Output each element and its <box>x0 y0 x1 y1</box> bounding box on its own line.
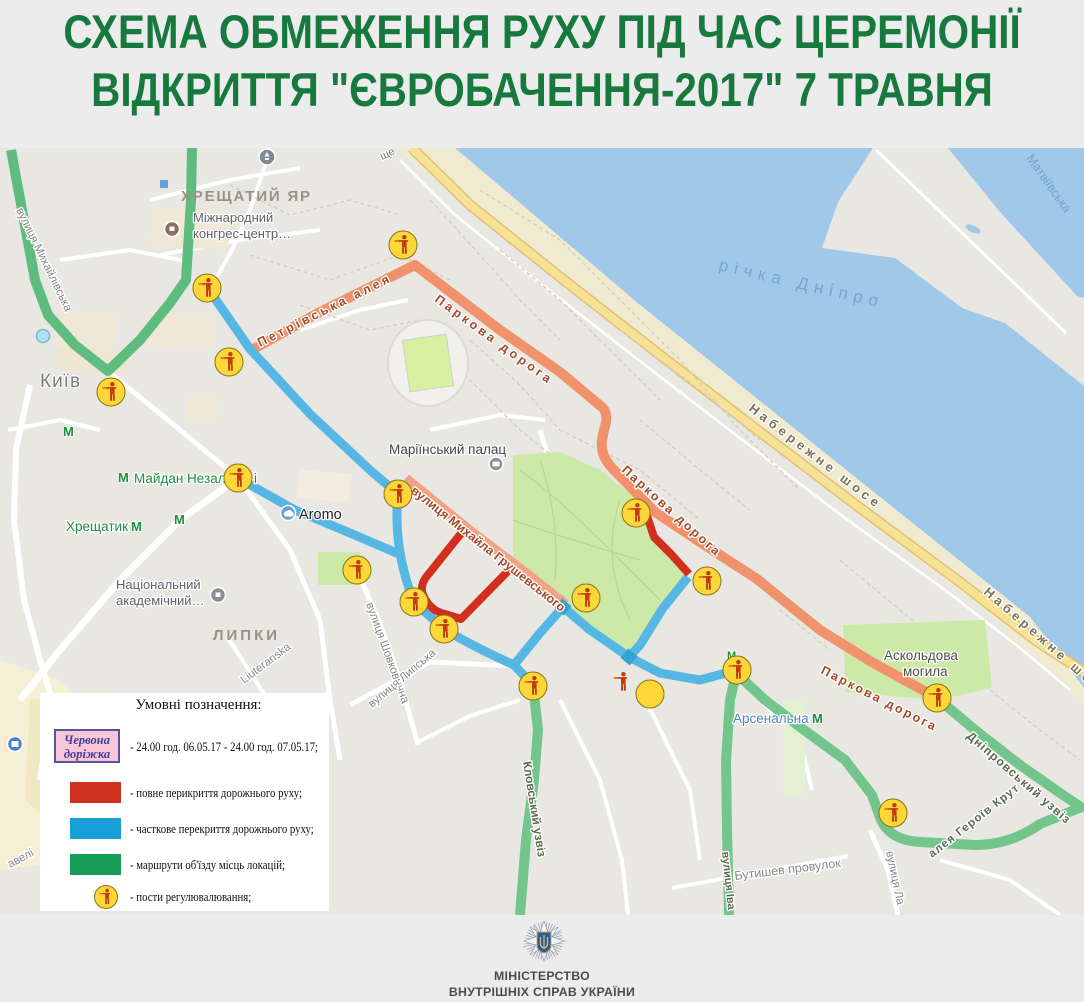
svg-text:Хрещатик: Хрещатик <box>66 519 128 534</box>
svg-text:Міжнародний: Міжнародний <box>193 210 273 225</box>
svg-text:М: М <box>63 424 74 439</box>
svg-text:М: М <box>812 711 823 726</box>
svg-text:Арсенальна: Арсенальна <box>733 711 809 726</box>
svg-text:конгрес-центр…: конгрес-центр… <box>193 226 291 241</box>
svg-text:М: М <box>174 512 185 527</box>
svg-text:і: і <box>254 471 257 486</box>
svg-text:ХРЕЩАТИЙ ЯР: ХРЕЩАТИЙ ЯР <box>181 187 312 205</box>
svg-text:академічний…: академічний… <box>116 593 205 608</box>
svg-text:Aromo: Aromo <box>299 507 342 523</box>
svg-text:могила: могила <box>903 664 948 679</box>
svg-text:М: М <box>118 470 129 485</box>
svg-text:Аскольдова: Аскольдова <box>884 648 958 663</box>
svg-text:Маріїнський палац: Маріїнський палац <box>389 442 506 457</box>
svg-text:М: М <box>131 519 142 534</box>
svg-text:Київ: Київ <box>40 371 81 392</box>
svg-text:Національний: Національний <box>116 577 201 592</box>
svg-text:ЛИПКИ: ЛИПКИ <box>213 627 280 644</box>
